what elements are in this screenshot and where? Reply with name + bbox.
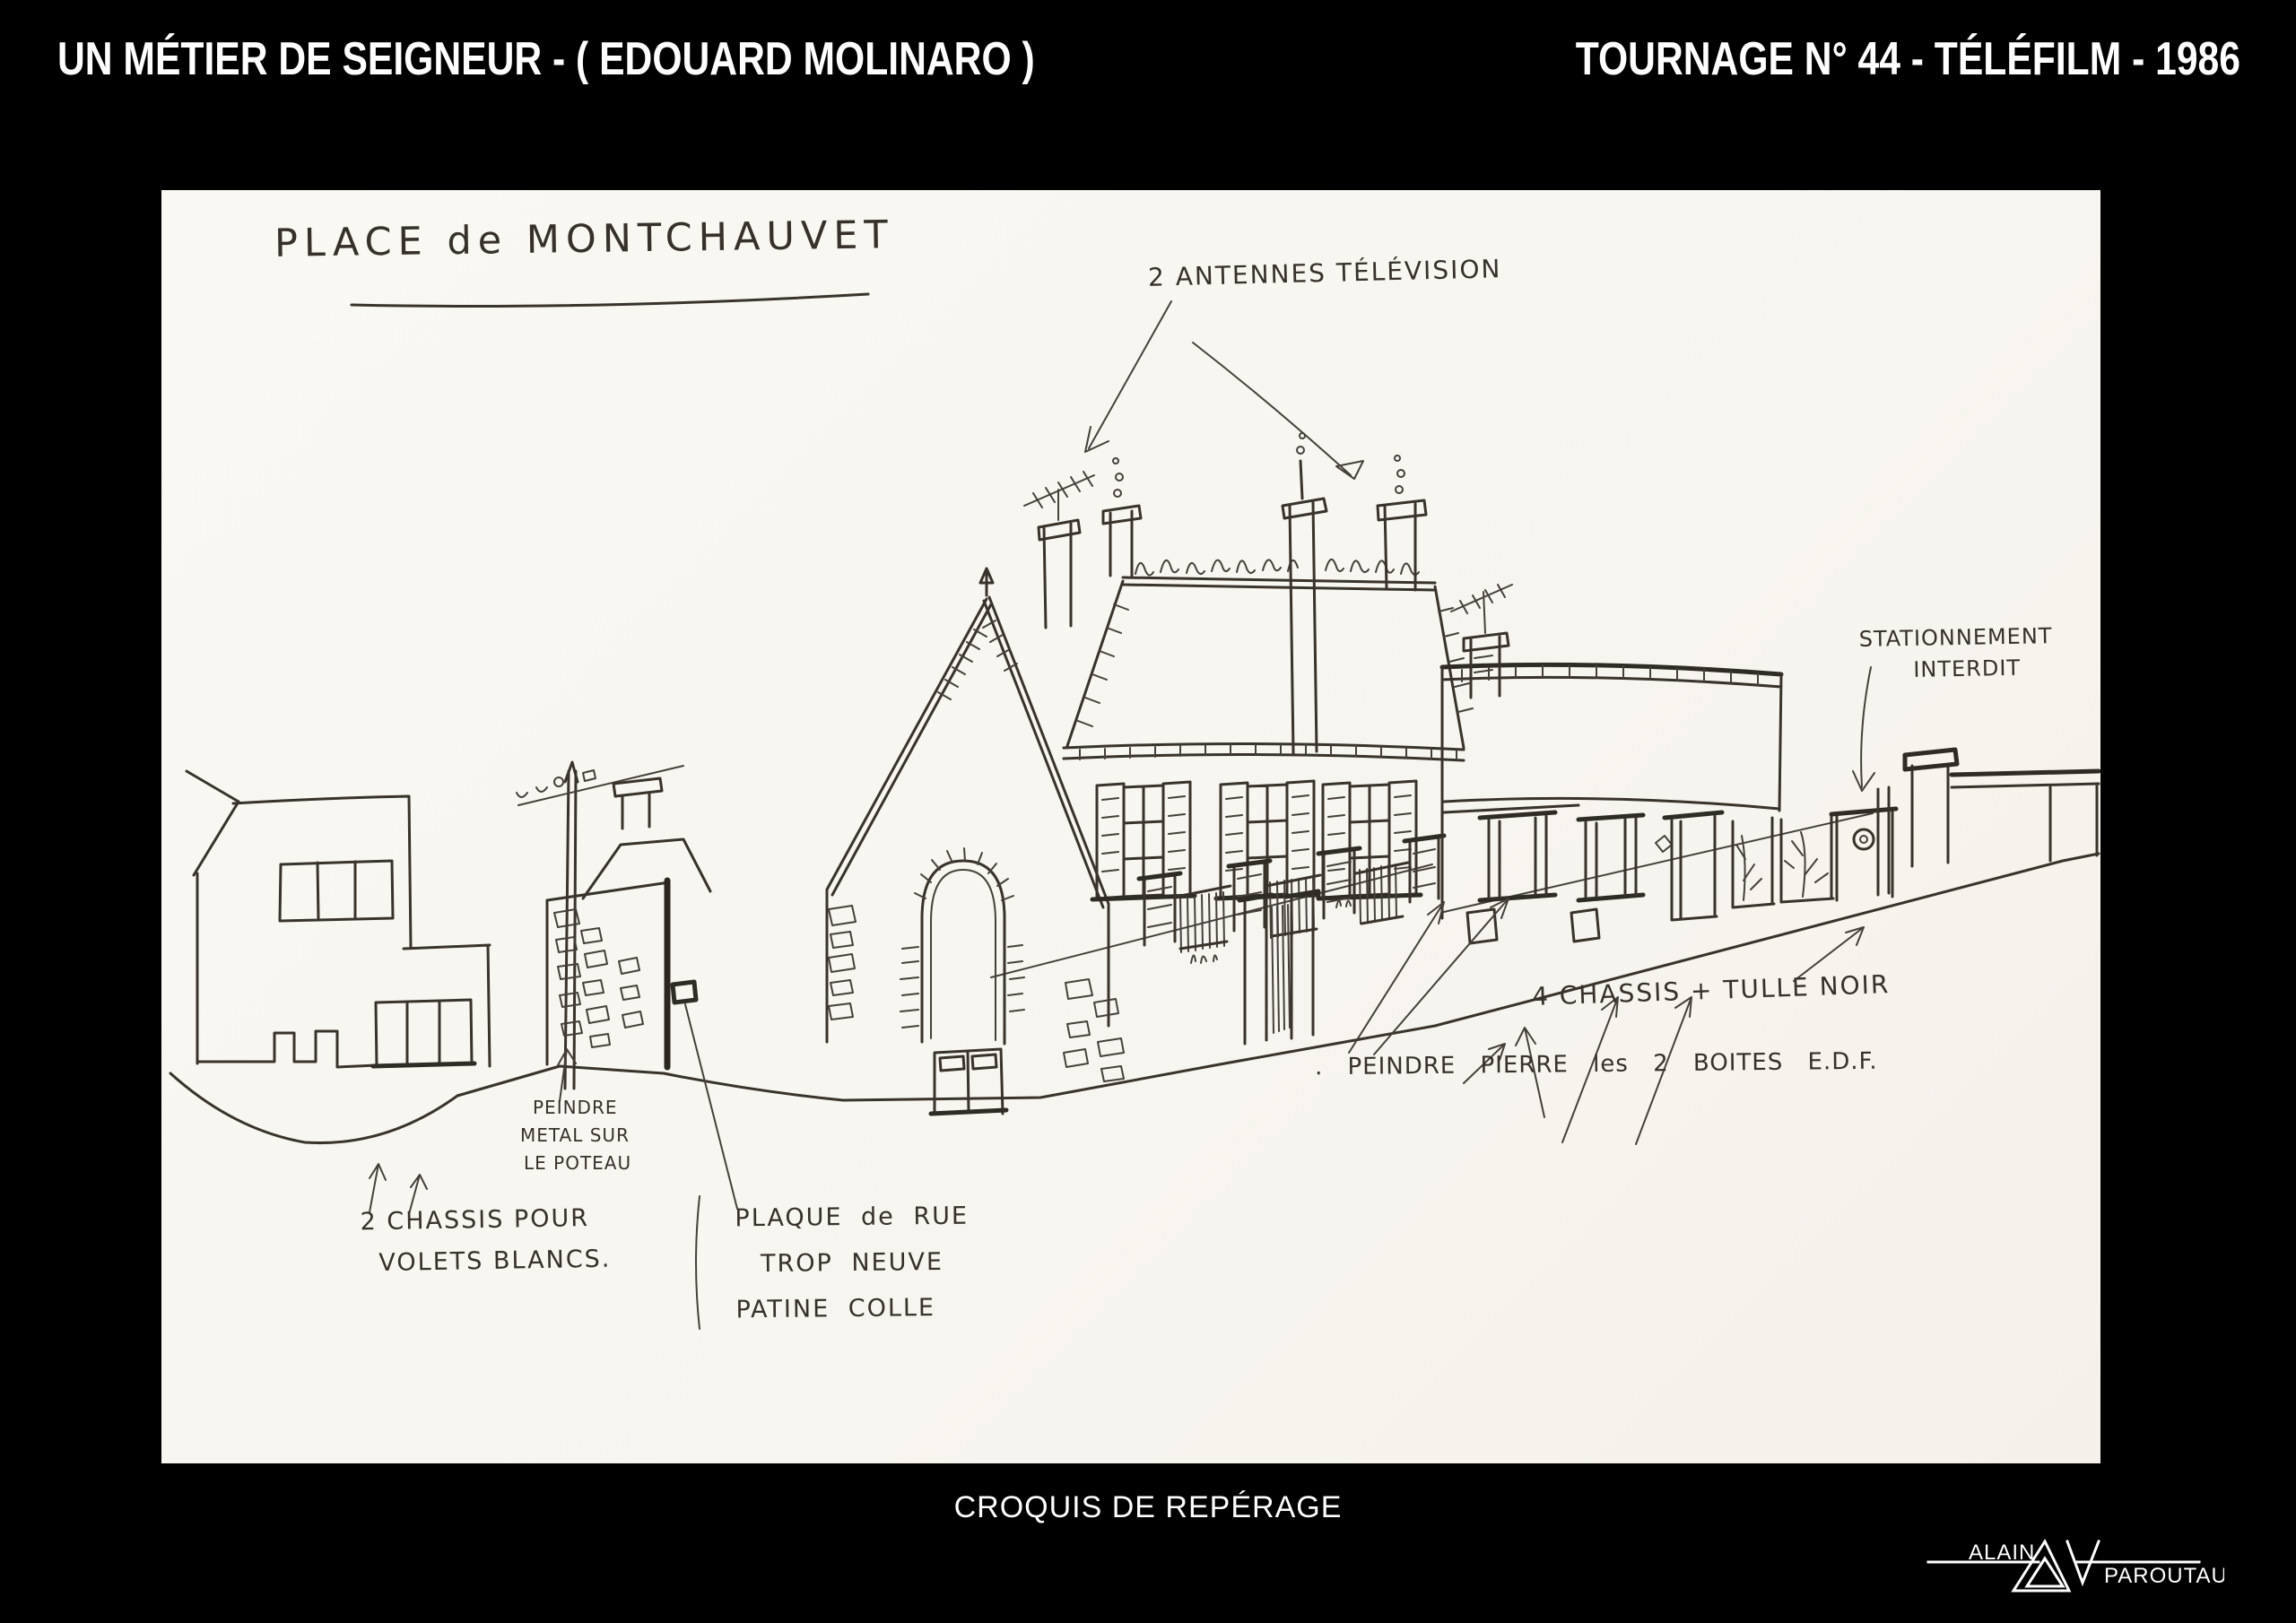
front-fence bbox=[1139, 836, 1444, 1044]
plaque-leader-line bbox=[685, 1004, 737, 1209]
sketch-paper: PLACE de MONTCHAUVET 2 ANTENNES TÉLÉVISI… bbox=[161, 190, 2100, 1463]
gabled-house bbox=[827, 568, 1124, 1114]
tv-antenna-right bbox=[1451, 585, 1512, 633]
sketch-title: PLACE de MONTCHAUVET bbox=[274, 213, 894, 266]
note-no-parking: STATIONNEMENT INTERDIT bbox=[1858, 621, 2053, 687]
caption: CROQUIS DE REPÉRAGE bbox=[0, 1490, 2296, 1525]
archive-page: UN MÉTIER DE SEIGNEUR - ( EDOUARD MOLINA… bbox=[0, 0, 2296, 1623]
diamond-mark bbox=[1656, 836, 1672, 852]
note-chassis-volets: 2 CHASSIS POUR VOLETS BLANCS. bbox=[360, 1198, 612, 1285]
roof-cresting bbox=[1135, 560, 1419, 576]
edf-box-panels bbox=[1733, 816, 1833, 907]
film-title: UN MÉTIER DE SEIGNEUR - ( EDOUARD MOLINA… bbox=[57, 32, 1035, 86]
antenna-arrow-right bbox=[1193, 343, 1363, 479]
utility-pole bbox=[517, 762, 683, 1089]
note-plaque-rue: PLAQUE de RUE TROP NEUVE PATINE COLLE bbox=[735, 1193, 970, 1333]
logo-last-name: PAROUTAUD bbox=[2104, 1564, 2224, 1588]
stone-wall bbox=[547, 881, 696, 1067]
street-plaque bbox=[673, 982, 696, 1002]
shuttered-window bbox=[1216, 781, 1318, 898]
left-building bbox=[187, 771, 490, 1067]
tv-antenna-left bbox=[1024, 472, 1094, 520]
plaque-bracket bbox=[696, 1196, 700, 1329]
shoot-info: TOURNAGE N° 44 - TÉLÉFILM - 1986 bbox=[1576, 32, 2240, 86]
paroutaud-logo: ALAIN PAROUTAUD bbox=[1919, 1535, 2224, 1620]
peindre-pierre-arrow bbox=[1374, 898, 1509, 1055]
small-house bbox=[583, 778, 710, 898]
peindre-pierre-arrow bbox=[1349, 902, 1444, 1053]
logo-first-name: ALAIN bbox=[1969, 1541, 2035, 1565]
title-underline bbox=[352, 294, 868, 307]
note-peindre-metal: PEINDRE METAL SUR LE POTEAU bbox=[520, 1094, 631, 1177]
antenna-arrow-left bbox=[1085, 301, 1171, 452]
